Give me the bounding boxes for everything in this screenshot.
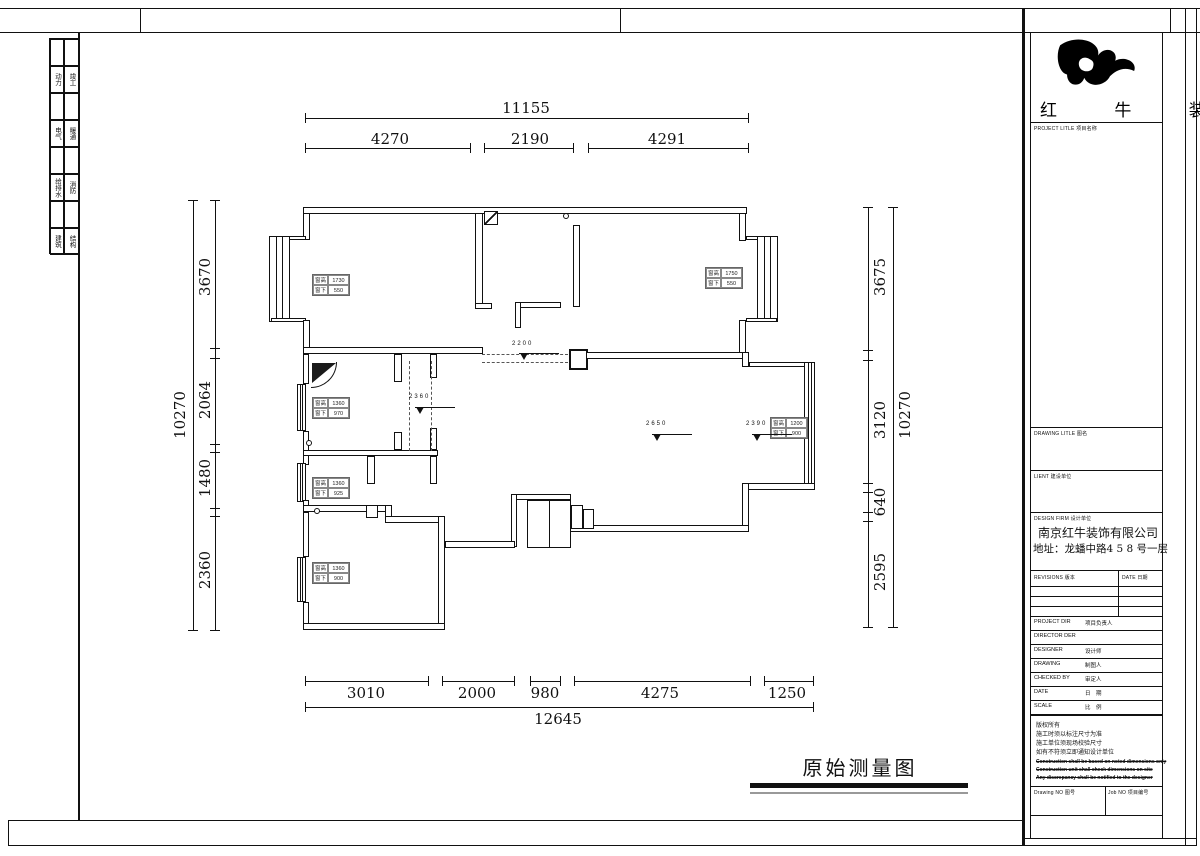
strip-cell: 电气 (50, 120, 64, 147)
wtag-value: 925 (328, 488, 349, 498)
wall-segment (438, 516, 445, 630)
dim-seg: 1250 (752, 684, 822, 702)
titleblock-divider (1030, 630, 1162, 631)
titleblock-divider (1118, 570, 1119, 616)
wall-segment (303, 207, 747, 214)
wtag-value: 550 (328, 285, 349, 295)
dim-seg: 640 (871, 467, 889, 537)
dim-tick (748, 113, 749, 123)
titleblock-divider (1030, 700, 1162, 701)
titleblock-divider (1030, 570, 1162, 571)
beam-dashed-line (409, 361, 410, 451)
titleblock-divider (1030, 427, 1162, 428)
dim-tick (188, 630, 198, 631)
design-firm-label: DESIGN FIRM 设计单位 (1034, 515, 1091, 522)
dim-line (193, 200, 194, 630)
wall-segment (303, 354, 309, 384)
titleblock-divider (1030, 596, 1162, 597)
dim-total-bottom: 12645 (523, 710, 593, 728)
wall-segment (366, 505, 378, 518)
wall-segment (515, 302, 521, 328)
window-tag: 窗高1750 窗下550 (705, 267, 743, 289)
notice-line: 施工单位须现场校验尺寸 (1036, 738, 1102, 747)
titleblock-divider (1030, 815, 1162, 816)
strip-cell (64, 93, 79, 120)
frame-line (1022, 8, 1025, 846)
wtag-label: 窗高 (313, 398, 328, 408)
wall-segment (742, 352, 749, 367)
titleblock-divider (1030, 616, 1162, 617)
dim-line (484, 148, 573, 149)
dim-tick (750, 676, 751, 686)
strip-cell: 建筑 (50, 228, 64, 255)
wall-segment (568, 525, 749, 532)
strip-cell (50, 147, 64, 174)
dim-seg: 4270 (355, 130, 425, 148)
dim-tick (748, 143, 749, 153)
entry-step (571, 505, 583, 529)
dim-line (893, 207, 894, 627)
entry-box-divider (549, 500, 550, 548)
strip-cell: 暖通 (64, 120, 79, 147)
drawing-no-label: Drawing NO 图号 (1034, 789, 1075, 796)
person-row-en: DIRECTOR DER (1034, 633, 1076, 639)
titleblock-divider (1030, 786, 1162, 787)
plan-title: 原始测量图 (760, 752, 960, 781)
strip-cell (64, 39, 79, 66)
pipe-riser-circle (563, 213, 569, 219)
level-triangle-icon (753, 434, 761, 441)
wtag-label: 窗下 (313, 408, 328, 418)
frame-tick (1170, 8, 1171, 32)
window-symbol (297, 557, 306, 602)
dim-line (305, 707, 813, 708)
level-value: 2200 (512, 341, 533, 347)
notice-line-en: Construction unit shall check dimensions… (1036, 767, 1153, 773)
wtag-label: 窗下 (313, 488, 328, 498)
date-col-label: DATE 日期 (1122, 574, 1148, 581)
notice-line-en: Any discrepancy shall be notified to the… (1036, 775, 1153, 781)
titleblock-divider (1030, 586, 1162, 587)
titleblock-border (1030, 33, 1031, 838)
drawing-title-label: DRAWING LITLE 图名 (1034, 430, 1087, 437)
window-tag: 窗高1730 窗下550 (312, 274, 350, 296)
wall-segment (739, 213, 746, 241)
wtag-value: 900 (328, 573, 349, 583)
person-row-en: PROJECT DIR (1034, 619, 1071, 625)
wall-segment (746, 318, 777, 322)
dim-seg: 3120 (871, 385, 889, 455)
dim-total-left: 10270 (171, 380, 189, 450)
titleblock-divider (1030, 686, 1162, 687)
titleblock-border (1022, 838, 1197, 839)
dim-seg: 3670 (196, 242, 214, 312)
strip-cell: 消防 (64, 174, 79, 201)
frame-line (8, 820, 1022, 821)
dim-tick (863, 350, 873, 351)
dim-tick (863, 360, 873, 361)
wall-segment (394, 354, 402, 382)
dim-tick (888, 627, 898, 628)
strip-cell (50, 39, 64, 66)
wtag-value: 550 (721, 278, 742, 288)
notice-line: 版权所有 (1036, 720, 1060, 729)
level-value: 2390 (746, 421, 767, 427)
dim-line (574, 681, 750, 682)
dim-seg: 4291 (632, 130, 702, 148)
titleblock-divider (1030, 714, 1162, 716)
wall-segment (586, 352, 743, 359)
titleblock-divider (1030, 644, 1162, 645)
wtag-value: 1750 (721, 268, 742, 278)
wtag-label: 窗下 (313, 573, 328, 583)
dim-line (305, 118, 748, 119)
notice-line-en: Construction shall be based on noted dim… (1036, 759, 1166, 765)
dim-seg: 2064 (196, 365, 214, 435)
window-symbol (297, 384, 306, 431)
level-triangle-icon (520, 353, 528, 360)
wall-segment (394, 432, 402, 450)
dim-tick (484, 143, 485, 153)
dim-tick (428, 676, 429, 686)
wtag-value: 900 (786, 428, 807, 438)
strip-cell: 给排水 (50, 174, 64, 201)
window-symbol (269, 236, 290, 322)
dim-seg: 980 (510, 684, 580, 702)
person-row-cn: 制图人 (1085, 661, 1102, 669)
dim-seg: 3010 (331, 684, 401, 702)
dim-seg: 4275 (625, 684, 695, 702)
dim-seg: 2595 (871, 537, 889, 607)
wtag-label: 窗下 (313, 285, 328, 295)
design-firm-address: 地址：龙蟠中路4 5 8 号一层 (1033, 541, 1163, 556)
strip-cell: 动力 (50, 66, 64, 93)
frame-tick (140, 8, 141, 32)
frame-line (8, 845, 1197, 846)
wtag-label: 窗下 (771, 428, 786, 438)
window-symbol (297, 463, 306, 502)
dim-line (868, 207, 869, 627)
wall-segment (430, 456, 437, 484)
person-row-cn: 设计师 (1085, 647, 1102, 655)
frame-line (0, 32, 1200, 33)
person-row-cn: 比 例 (1085, 703, 1102, 711)
dim-seg: 2000 (442, 684, 512, 702)
wall-segment (385, 516, 445, 523)
level-triangle-icon (653, 434, 661, 441)
dim-tick (210, 200, 220, 201)
person-row-cn: 审定人 (1085, 675, 1102, 683)
dim-tick (863, 627, 873, 628)
person-row-en: DATE (1034, 689, 1048, 695)
wtag-value: 1730 (328, 275, 349, 285)
dim-line (215, 200, 216, 630)
revisions-label: REVISIONS 版本 (1034, 574, 1075, 581)
dim-line (305, 148, 470, 149)
dim-tick (305, 143, 306, 153)
strip-cell: 结构 (64, 228, 79, 255)
pipe-riser-circle (306, 440, 312, 446)
entry-step (583, 509, 594, 529)
strip-cell: 竣工 (64, 66, 79, 93)
wtag-label: 窗高 (771, 418, 786, 428)
wall-segment (515, 302, 561, 308)
dim-tick (470, 143, 471, 153)
wall-segment (445, 541, 515, 548)
level-triangle-icon (416, 407, 424, 414)
dim-tick (813, 702, 814, 712)
dim-total-top: 11155 (491, 99, 561, 117)
beam-dashed-line (482, 362, 568, 363)
wtag-label: 窗高 (313, 275, 328, 285)
titleblock-divider (1105, 786, 1106, 815)
titleblock-divider (1030, 606, 1162, 607)
dim-seg: 2360 (196, 535, 214, 605)
title-underline (750, 783, 968, 788)
dim-seg: 2190 (495, 130, 565, 148)
person-row-cn: 日 期 (1085, 689, 1102, 697)
dim-seg: 3675 (871, 242, 889, 312)
wtag-label: 窗高 (313, 563, 328, 573)
dim-tick (888, 207, 898, 208)
dim-tick (863, 207, 873, 208)
dim-tick (305, 702, 306, 712)
dim-line (442, 681, 514, 682)
dim-line (588, 148, 748, 149)
person-row-en: DESIGNER (1034, 647, 1063, 653)
dim-seg: 1480 (196, 443, 214, 513)
title-underline-thin (750, 792, 968, 794)
company-name: 红 牛 装 饰 (1040, 96, 1198, 121)
dim-tick (188, 200, 198, 201)
client-label: LIENT 建设单位 (1034, 473, 1071, 480)
wall-segment (303, 512, 309, 557)
frame-tick (620, 8, 621, 32)
dim-tick (210, 358, 220, 359)
frame-line (1196, 8, 1197, 846)
wall-segment (475, 303, 492, 309)
flue-shaft-symbol (484, 211, 498, 225)
pipe-riser-circle (314, 508, 320, 514)
project-title-label: PROJECT LITLE 项目名称 (1034, 125, 1097, 132)
window-tag: 窗高1200 窗下900 (770, 417, 808, 439)
wtag-value: 970 (328, 408, 349, 418)
titleblock-divider (1030, 672, 1162, 673)
wtag-value: 1360 (328, 478, 349, 488)
dim-tick (573, 143, 574, 153)
window-symbol (757, 236, 778, 322)
dim-tick (588, 143, 589, 153)
wtag-label: 窗高 (313, 478, 328, 488)
wall-segment (747, 483, 815, 490)
job-no-label: Job NO 项目编号 (1108, 789, 1149, 796)
frame-line (8, 820, 9, 845)
frame-line (1185, 8, 1186, 846)
window-tag: 窗高1360 窗下900 (312, 562, 350, 584)
dim-tick (210, 348, 220, 349)
notice-line: 施工时须以标注尺寸为准 (1036, 729, 1102, 738)
dim-line (530, 681, 560, 682)
level-value: 2650 (646, 421, 667, 427)
titleblock-divider (1030, 512, 1162, 513)
titleblock-divider (1030, 122, 1162, 123)
wtag-label: 窗下 (706, 278, 721, 288)
dim-total-right: 10270 (896, 380, 914, 450)
strip-cell (64, 147, 79, 174)
beam-dashed-line (431, 361, 432, 451)
discipline-strip: 动力竣工 电气暖通 给排水消防 建筑结构 (49, 38, 79, 254)
person-row-en: CHECKED BY (1034, 675, 1070, 681)
dim-tick (210, 516, 220, 517)
wtag-label: 窗高 (706, 268, 721, 278)
person-row-en: DRAWING (1034, 661, 1060, 667)
strip-cell (50, 93, 64, 120)
wall-segment (303, 623, 445, 630)
titleblock-divider (1030, 658, 1162, 659)
notice-line: 如有不符须立即通知设计单位 (1036, 747, 1114, 756)
door-leaf (312, 363, 336, 383)
wtag-value: 1360 (328, 563, 349, 573)
dim-line (764, 681, 813, 682)
wall-segment (303, 347, 483, 354)
titleblock-border (1162, 33, 1163, 838)
dim-tick (305, 676, 306, 686)
strip-cell (50, 201, 64, 228)
dim-tick (210, 630, 220, 631)
dim-line (305, 681, 428, 682)
wall-segment (749, 362, 807, 367)
person-row-cn: 项目负责人 (1085, 619, 1113, 627)
wall-segment (367, 456, 375, 484)
wall-segment (573, 225, 580, 307)
wall-segment (511, 494, 517, 547)
wall-segment (475, 213, 483, 309)
dim-tick (305, 113, 306, 123)
wtag-value: 1200 (786, 418, 807, 428)
wall-segment (271, 318, 306, 322)
drawing-sheet: 动力竣工 电气暖通 给排水消防 建筑结构 红 牛 装 饰 PROJECT LIT… (0, 0, 1200, 856)
frame-line (0, 8, 1200, 9)
window-tag: 窗高1360 窗下970 (312, 397, 350, 419)
window-tag: 窗高1360 窗下925 (312, 477, 350, 499)
rednow-bull-logo (1055, 36, 1141, 94)
design-firm-name: 南京红牛装饰有限公司 (1036, 524, 1160, 541)
wtag-value: 1360 (328, 398, 349, 408)
titleblock-divider (1030, 470, 1162, 471)
strip-cell (64, 201, 79, 228)
level-value: 2360 (409, 394, 430, 400)
person-row-en: SCALE (1034, 703, 1052, 709)
